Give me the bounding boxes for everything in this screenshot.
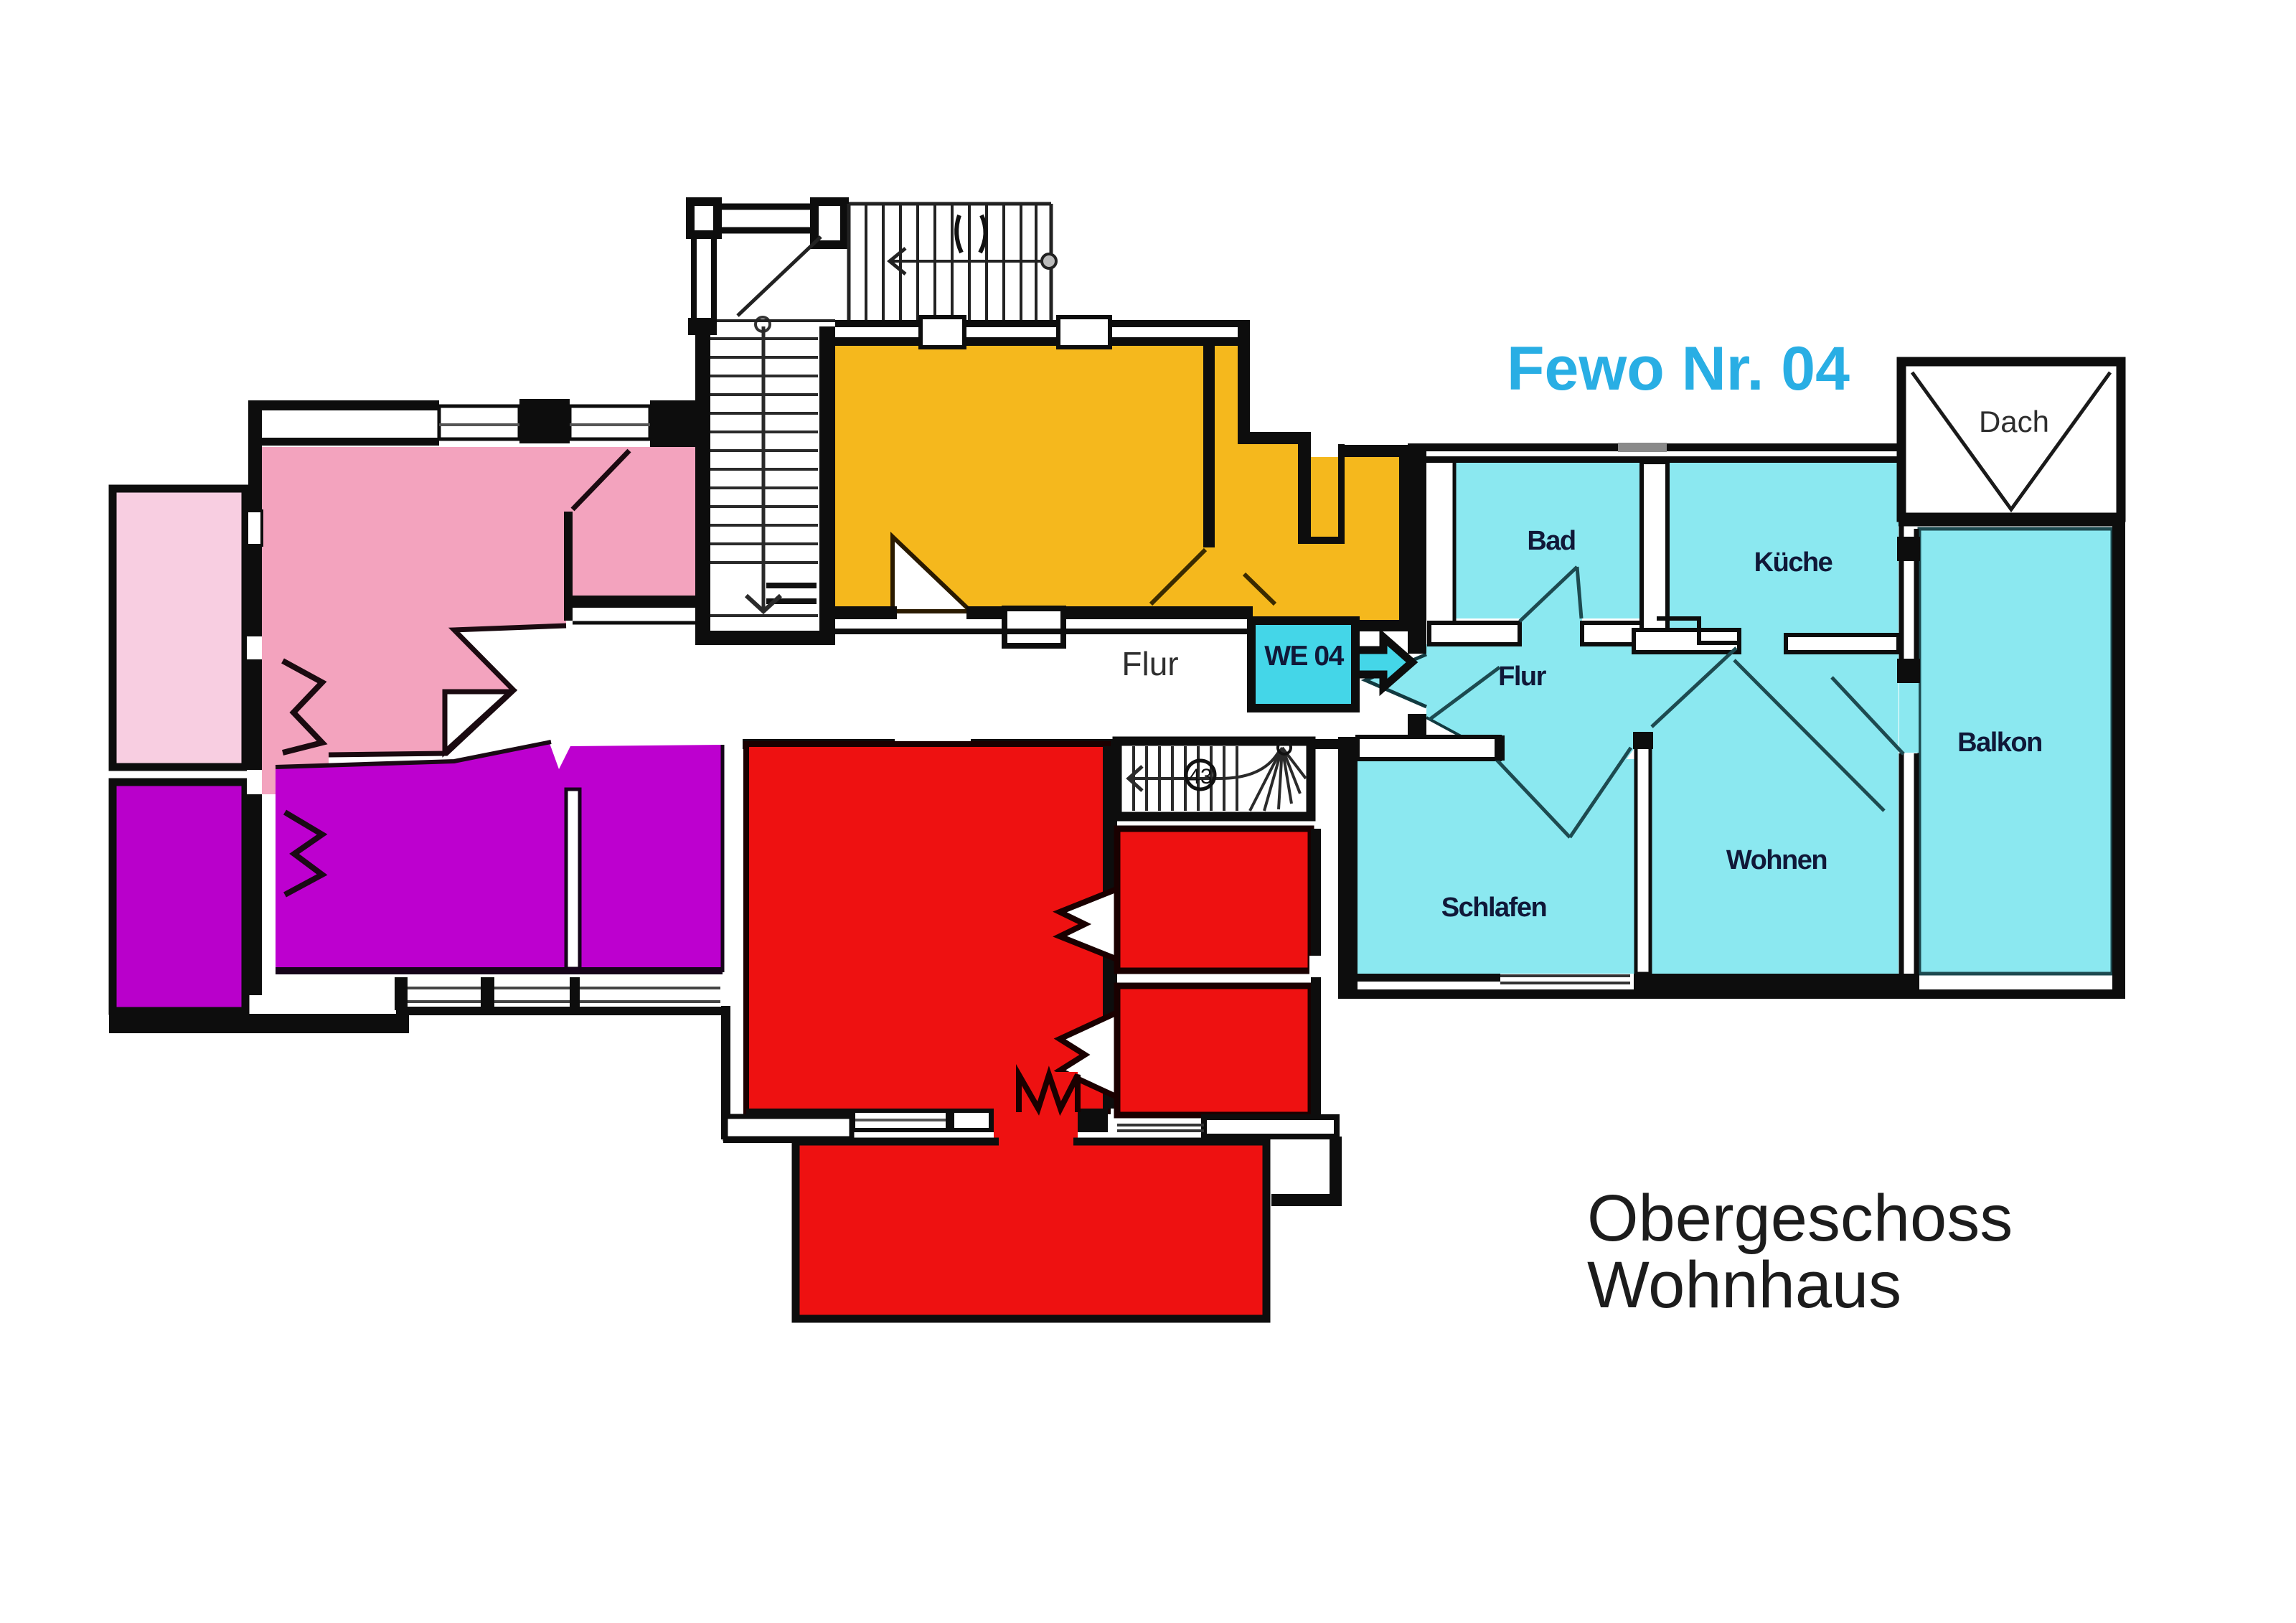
svg-text:Balkon: Balkon [1957, 728, 2042, 758]
svg-text:Dach: Dach [1979, 405, 2049, 438]
svg-text:Flur: Flur [1121, 645, 1178, 682]
svg-text:Obergeschoss: Obergeschoss [1587, 1182, 2013, 1255]
svg-text:43: 43 [1188, 765, 1212, 789]
svg-text:Küche: Küche [1754, 547, 1832, 578]
svg-text:Bad: Bad [1527, 526, 1575, 556]
svg-text:Schlafen: Schlafen [1441, 893, 1546, 923]
svg-text:Wohnhaus: Wohnhaus [1587, 1248, 1901, 1322]
svg-text:WE 04: WE 04 [1264, 641, 1344, 672]
svg-text:Wohnen: Wohnen [1726, 845, 1827, 875]
svg-text:Flur: Flur [1498, 662, 1546, 692]
svg-text:Fewo Nr. 04: Fewo Nr. 04 [1507, 334, 1850, 403]
